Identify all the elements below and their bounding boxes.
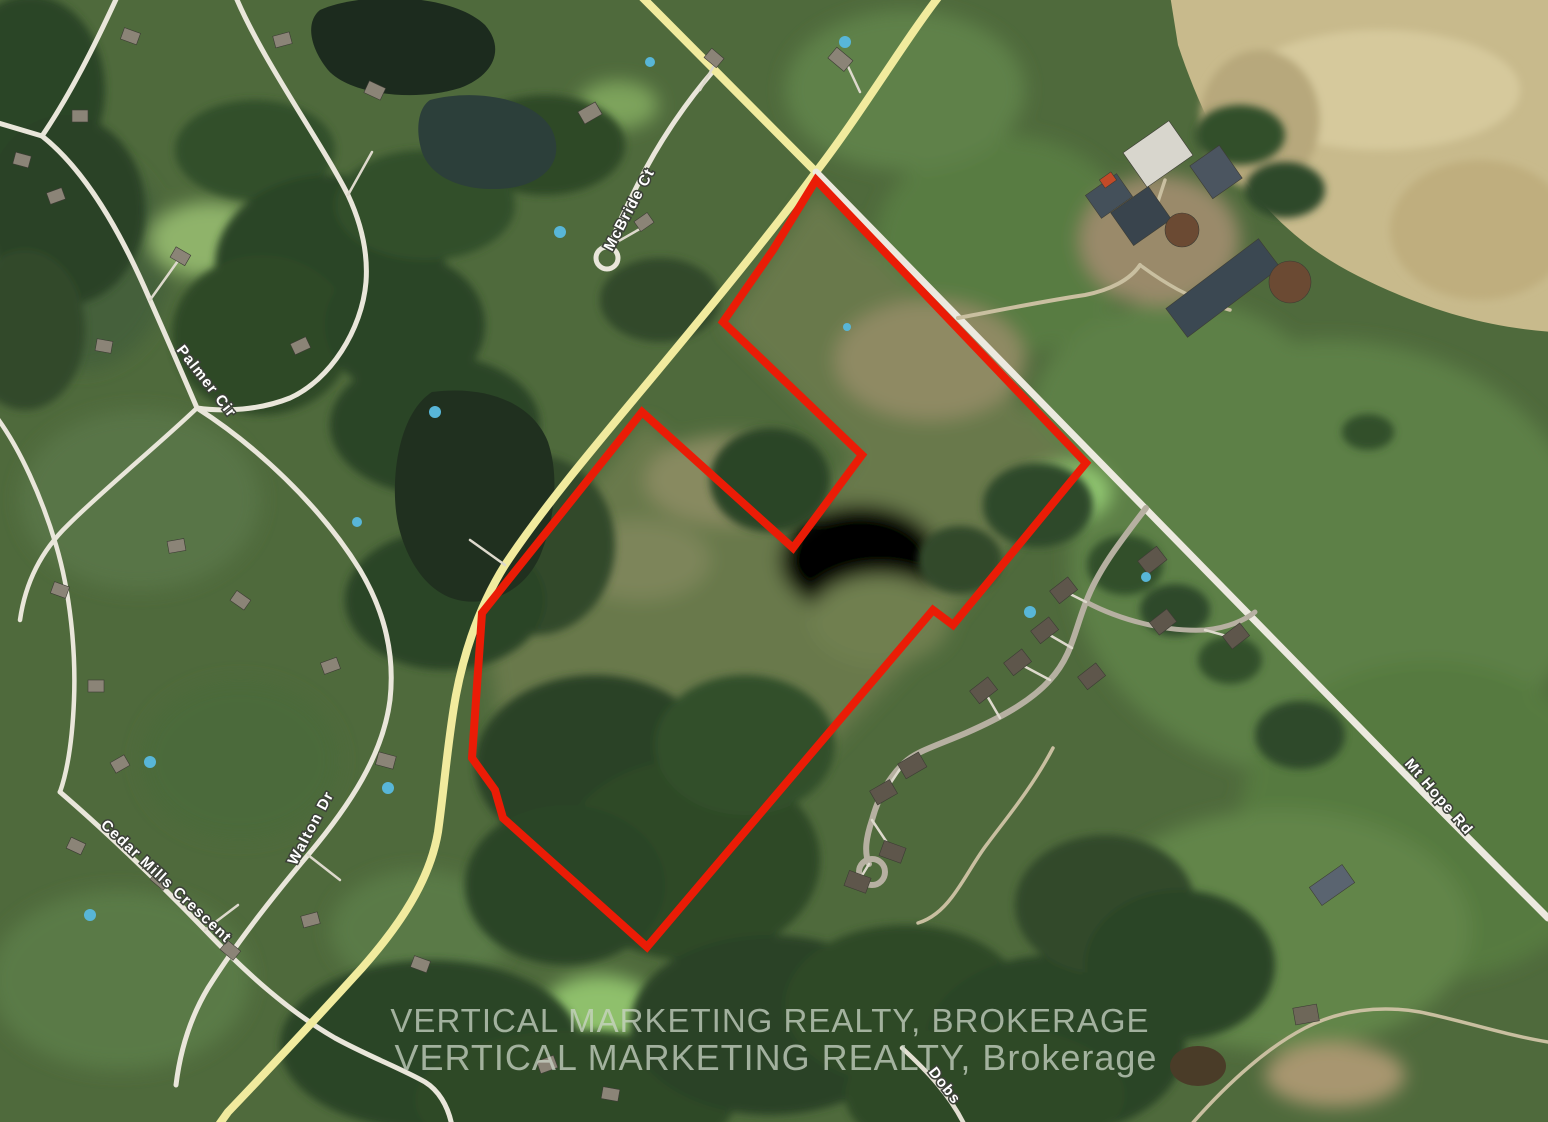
pond xyxy=(1170,1046,1226,1086)
watermark-line1: VERTICAL MARKETING REALTY, BROKERAGE xyxy=(390,1002,1149,1039)
satellite-map[interactable]: McBride Ct Palmer Cir Walton Dr Cedar Mi… xyxy=(0,0,1548,1122)
pond xyxy=(395,390,555,601)
aerial-map-stage: McBride Ct Palmer Cir Walton Dr Cedar Mi… xyxy=(0,0,1548,1122)
watermark: VERTICAL MARKETING REALTY, BROKERAGE VER… xyxy=(390,1002,1157,1078)
watermark-line2: VERTICAL MARKETING REALTY, Brokerage xyxy=(395,1037,1158,1078)
farm-lagoon xyxy=(1269,261,1311,303)
farm-lagoon xyxy=(1165,213,1199,247)
